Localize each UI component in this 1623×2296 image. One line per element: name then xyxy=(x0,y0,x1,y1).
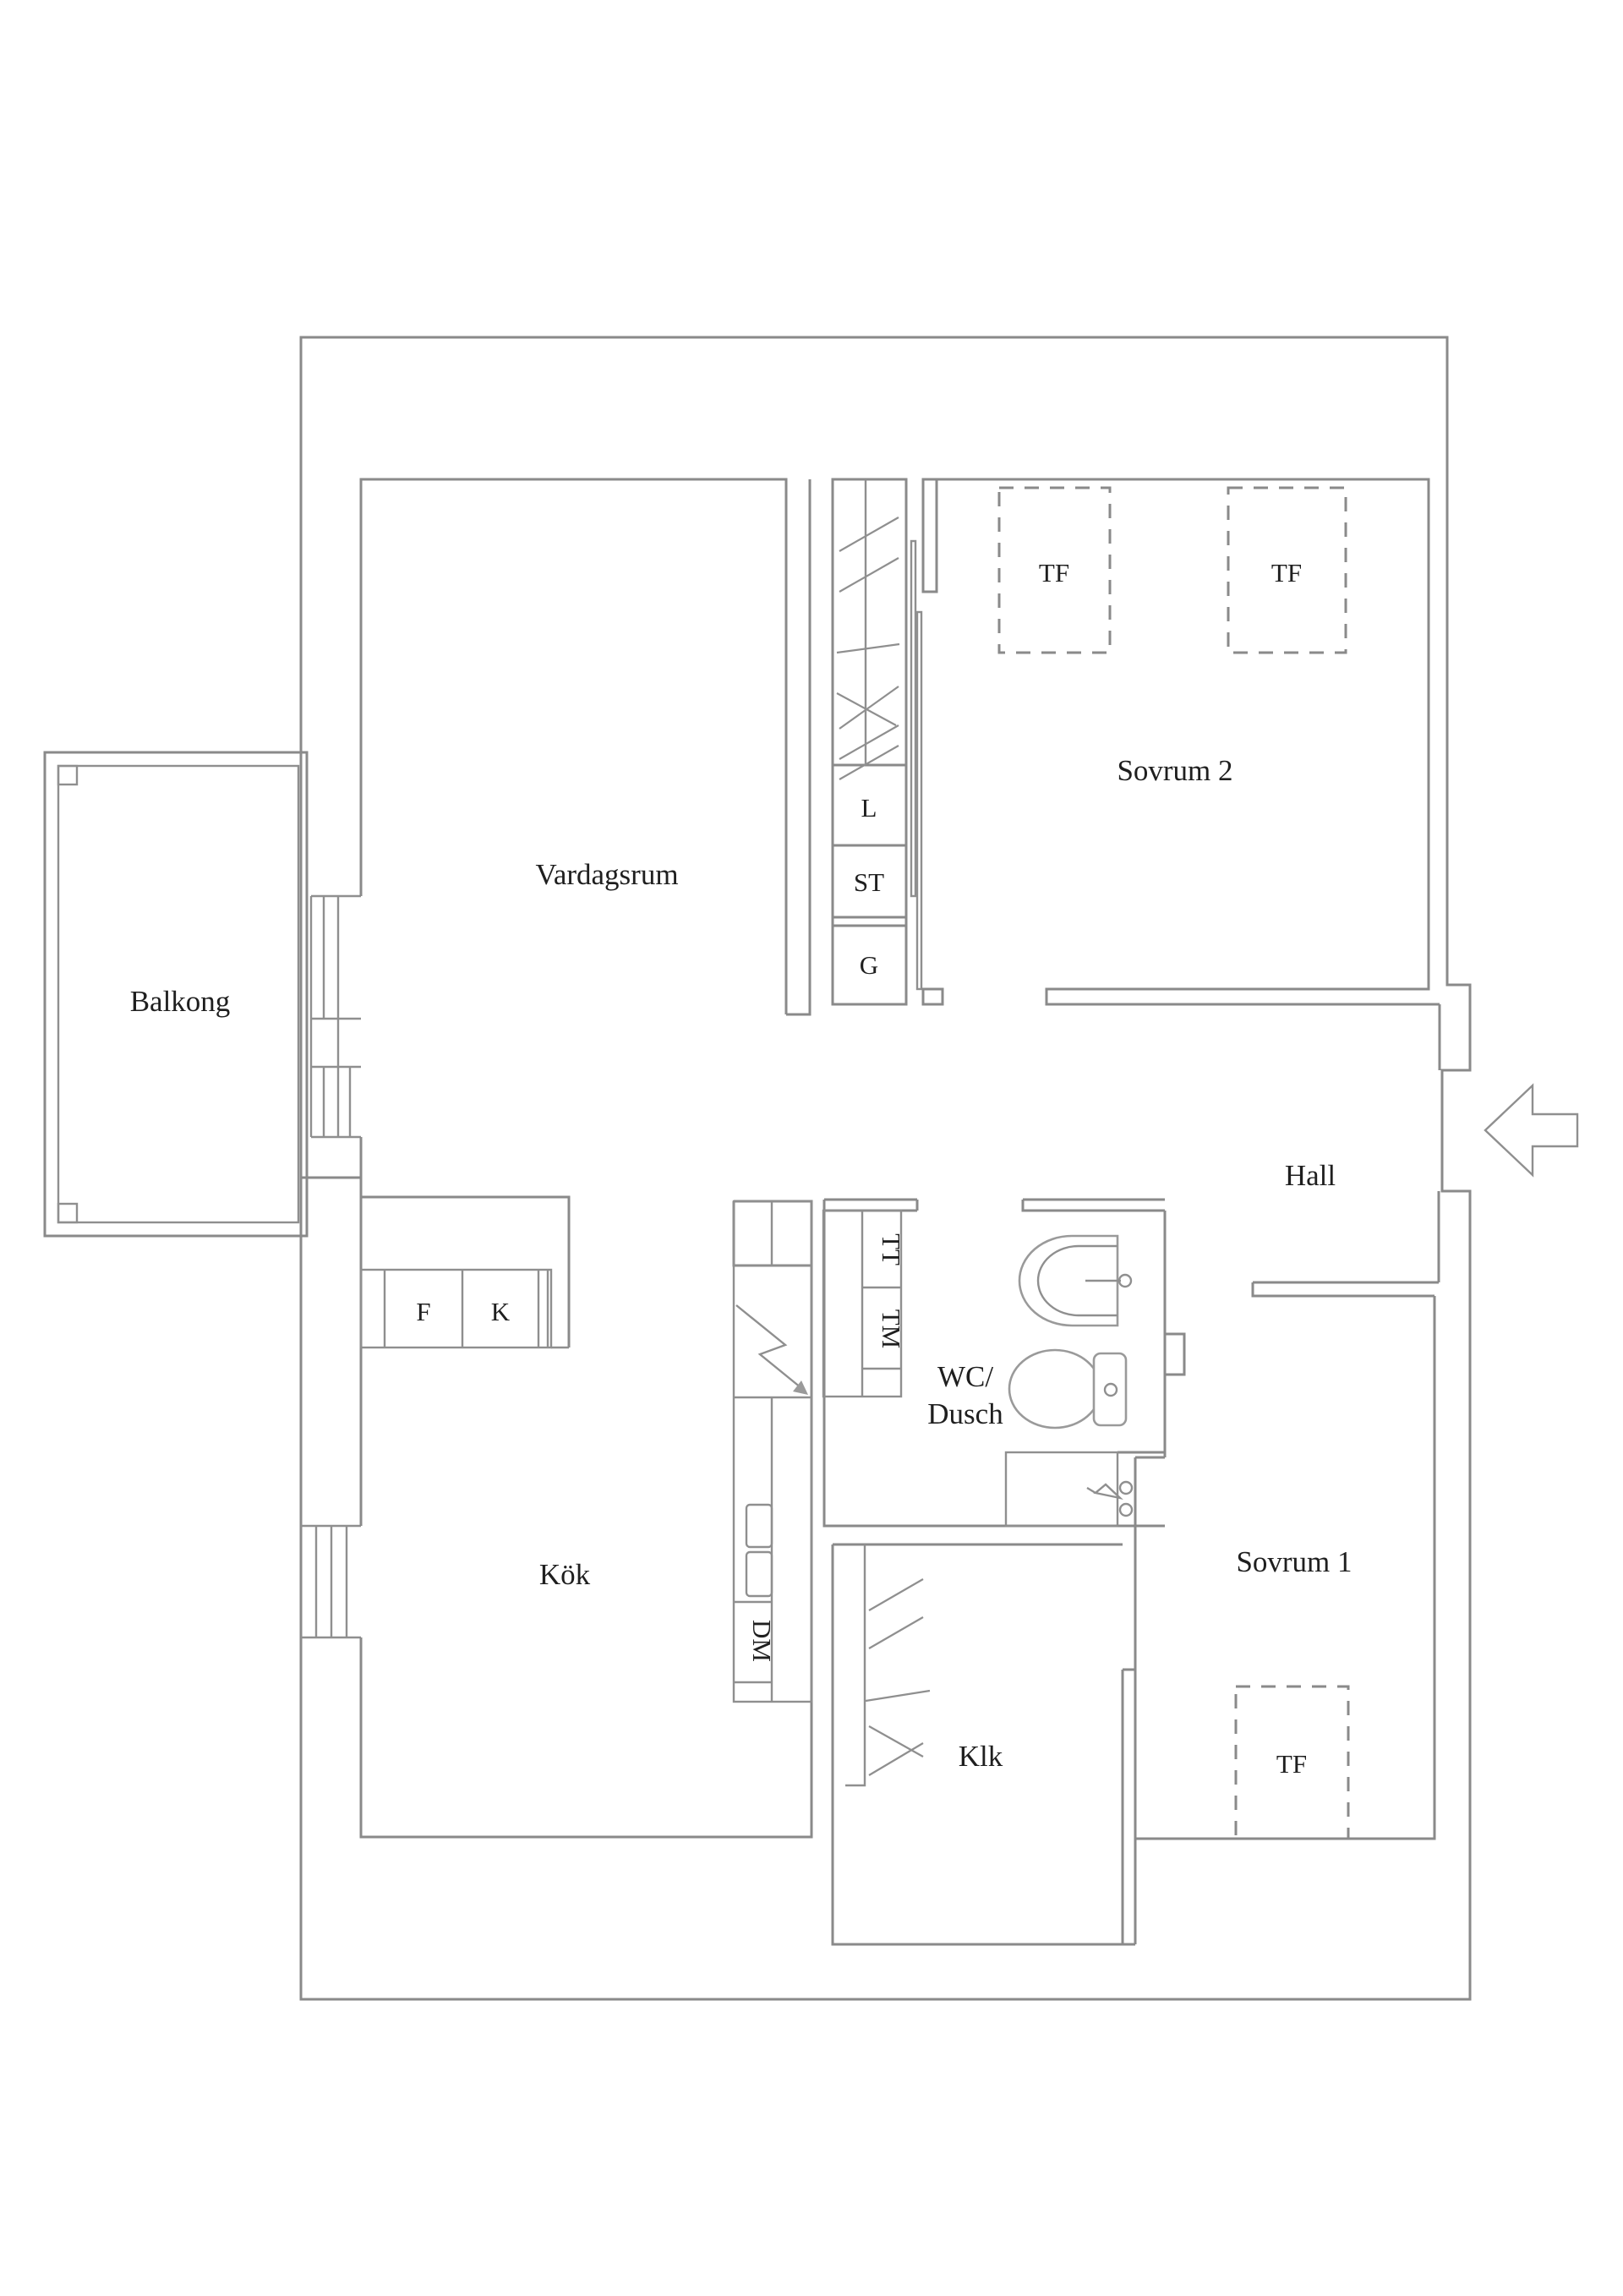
bedroom2: TF TF Sovrum 2 xyxy=(937,479,1440,1070)
bathroom: TT TM WC/ Dusch xyxy=(823,1200,1165,1526)
g-label: G xyxy=(860,950,878,980)
balcony-label: Balkong xyxy=(130,985,231,1018)
tf-label-bedroom2-left: TF xyxy=(1039,558,1069,588)
cabinet-small-box-1 xyxy=(746,1505,772,1547)
living-room-right-wall-band xyxy=(786,479,810,1014)
entrance-arrow-icon xyxy=(1485,1085,1577,1175)
sink-icon xyxy=(1019,1236,1131,1326)
tf-label-bedroom1: TF xyxy=(1276,1749,1307,1779)
bedroom1-label: Sovrum 1 xyxy=(1236,1545,1352,1578)
sliding-door-panel-2 xyxy=(917,612,921,989)
counter-outline xyxy=(361,1270,551,1348)
floor-plan-page: Balkong Vardagsrum L ST G xyxy=(0,0,1623,2296)
living-room-label: Vardagsrum xyxy=(535,858,678,891)
bedroom2-label: Sovrum 2 xyxy=(1117,754,1232,787)
balcony: Balkong xyxy=(45,752,307,1236)
closet-dividers xyxy=(833,765,906,926)
f-label: F xyxy=(416,1297,430,1326)
kitchen: F K DM Kök xyxy=(361,1197,811,1837)
tf-label-bedroom2-right: TF xyxy=(1271,558,1302,588)
linen-label: L xyxy=(861,793,877,823)
kitchen-walls xyxy=(361,1197,811,1837)
counter-dividers xyxy=(385,1270,569,1348)
shaft-zigzag-icon xyxy=(736,1305,806,1391)
hall-closet: L ST G xyxy=(833,479,943,1004)
toilet-icon xyxy=(1009,1350,1126,1428)
st-label: ST xyxy=(854,867,884,897)
klk-hatch-marks xyxy=(866,1579,930,1775)
shower xyxy=(1006,1452,1132,1526)
balcony-post-bottom xyxy=(58,1204,77,1222)
bathroom-label-line1: WC/ xyxy=(937,1360,993,1393)
hall-label: Hall xyxy=(1285,1159,1336,1192)
bathroom-label-line2: Dusch xyxy=(927,1397,1003,1430)
living-room-walls xyxy=(301,479,786,1197)
closet-wall-stub xyxy=(923,479,937,592)
tt-label: TT xyxy=(877,1233,906,1266)
laundry-unit: TT TM xyxy=(823,1211,906,1397)
floor-plan-drawing: Balkong Vardagsrum L ST G xyxy=(0,0,1623,2296)
kitchen-label: Kök xyxy=(539,1558,591,1591)
doorway-jamb-foot xyxy=(923,989,943,1004)
sliding-door-panel-1 xyxy=(911,541,915,896)
hall: Hall xyxy=(1285,1159,1439,1282)
kitchen-cabinet-column: DM xyxy=(734,1201,811,1702)
kitchen-counter: F K xyxy=(361,1270,569,1348)
kitchen-window xyxy=(301,1526,361,1637)
klk-label: Klk xyxy=(959,1740,1003,1773)
klk-wardrobe-front xyxy=(845,1544,865,1785)
balcony-door-window xyxy=(311,896,361,1137)
wardrobe-hatch-marks xyxy=(837,517,899,779)
dm-label: DM xyxy=(747,1620,777,1662)
k-label: K xyxy=(491,1297,511,1326)
cabinet-small-box-2 xyxy=(746,1552,772,1596)
balcony-post-top xyxy=(58,766,77,784)
klk-closet-room: Klk xyxy=(833,1544,1135,1944)
shower-mixer-icon xyxy=(1087,1482,1132,1516)
living-room: Vardagsrum xyxy=(301,479,810,1197)
bedroom1: TF Sovrum 1 xyxy=(1135,1282,1439,1839)
tm-label: TM xyxy=(877,1309,906,1349)
bathroom-wall-stub xyxy=(1165,1334,1184,1375)
